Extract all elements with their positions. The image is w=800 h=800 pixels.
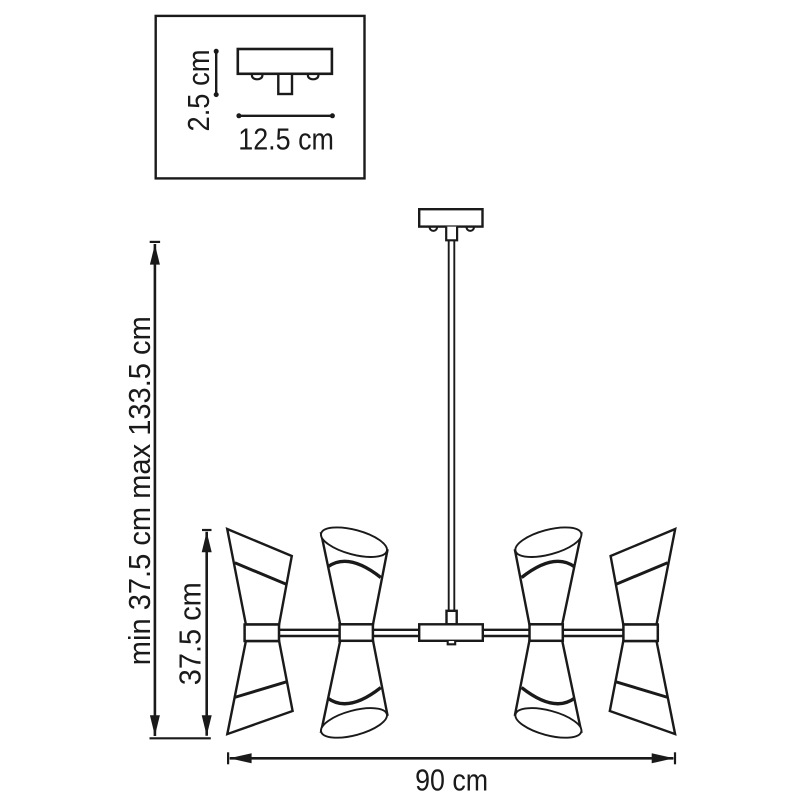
svg-text:12.5 cm: 12.5 cm [238,122,334,157]
svg-text:90 cm: 90 cm [415,762,488,797]
svg-text:37.5 cm: 37.5 cm [172,582,207,685]
svg-text:min 37.5 cm max 133.5 cm: min 37.5 cm max 133.5 cm [122,316,157,665]
svg-text:2.5 cm: 2.5 cm [181,50,216,132]
